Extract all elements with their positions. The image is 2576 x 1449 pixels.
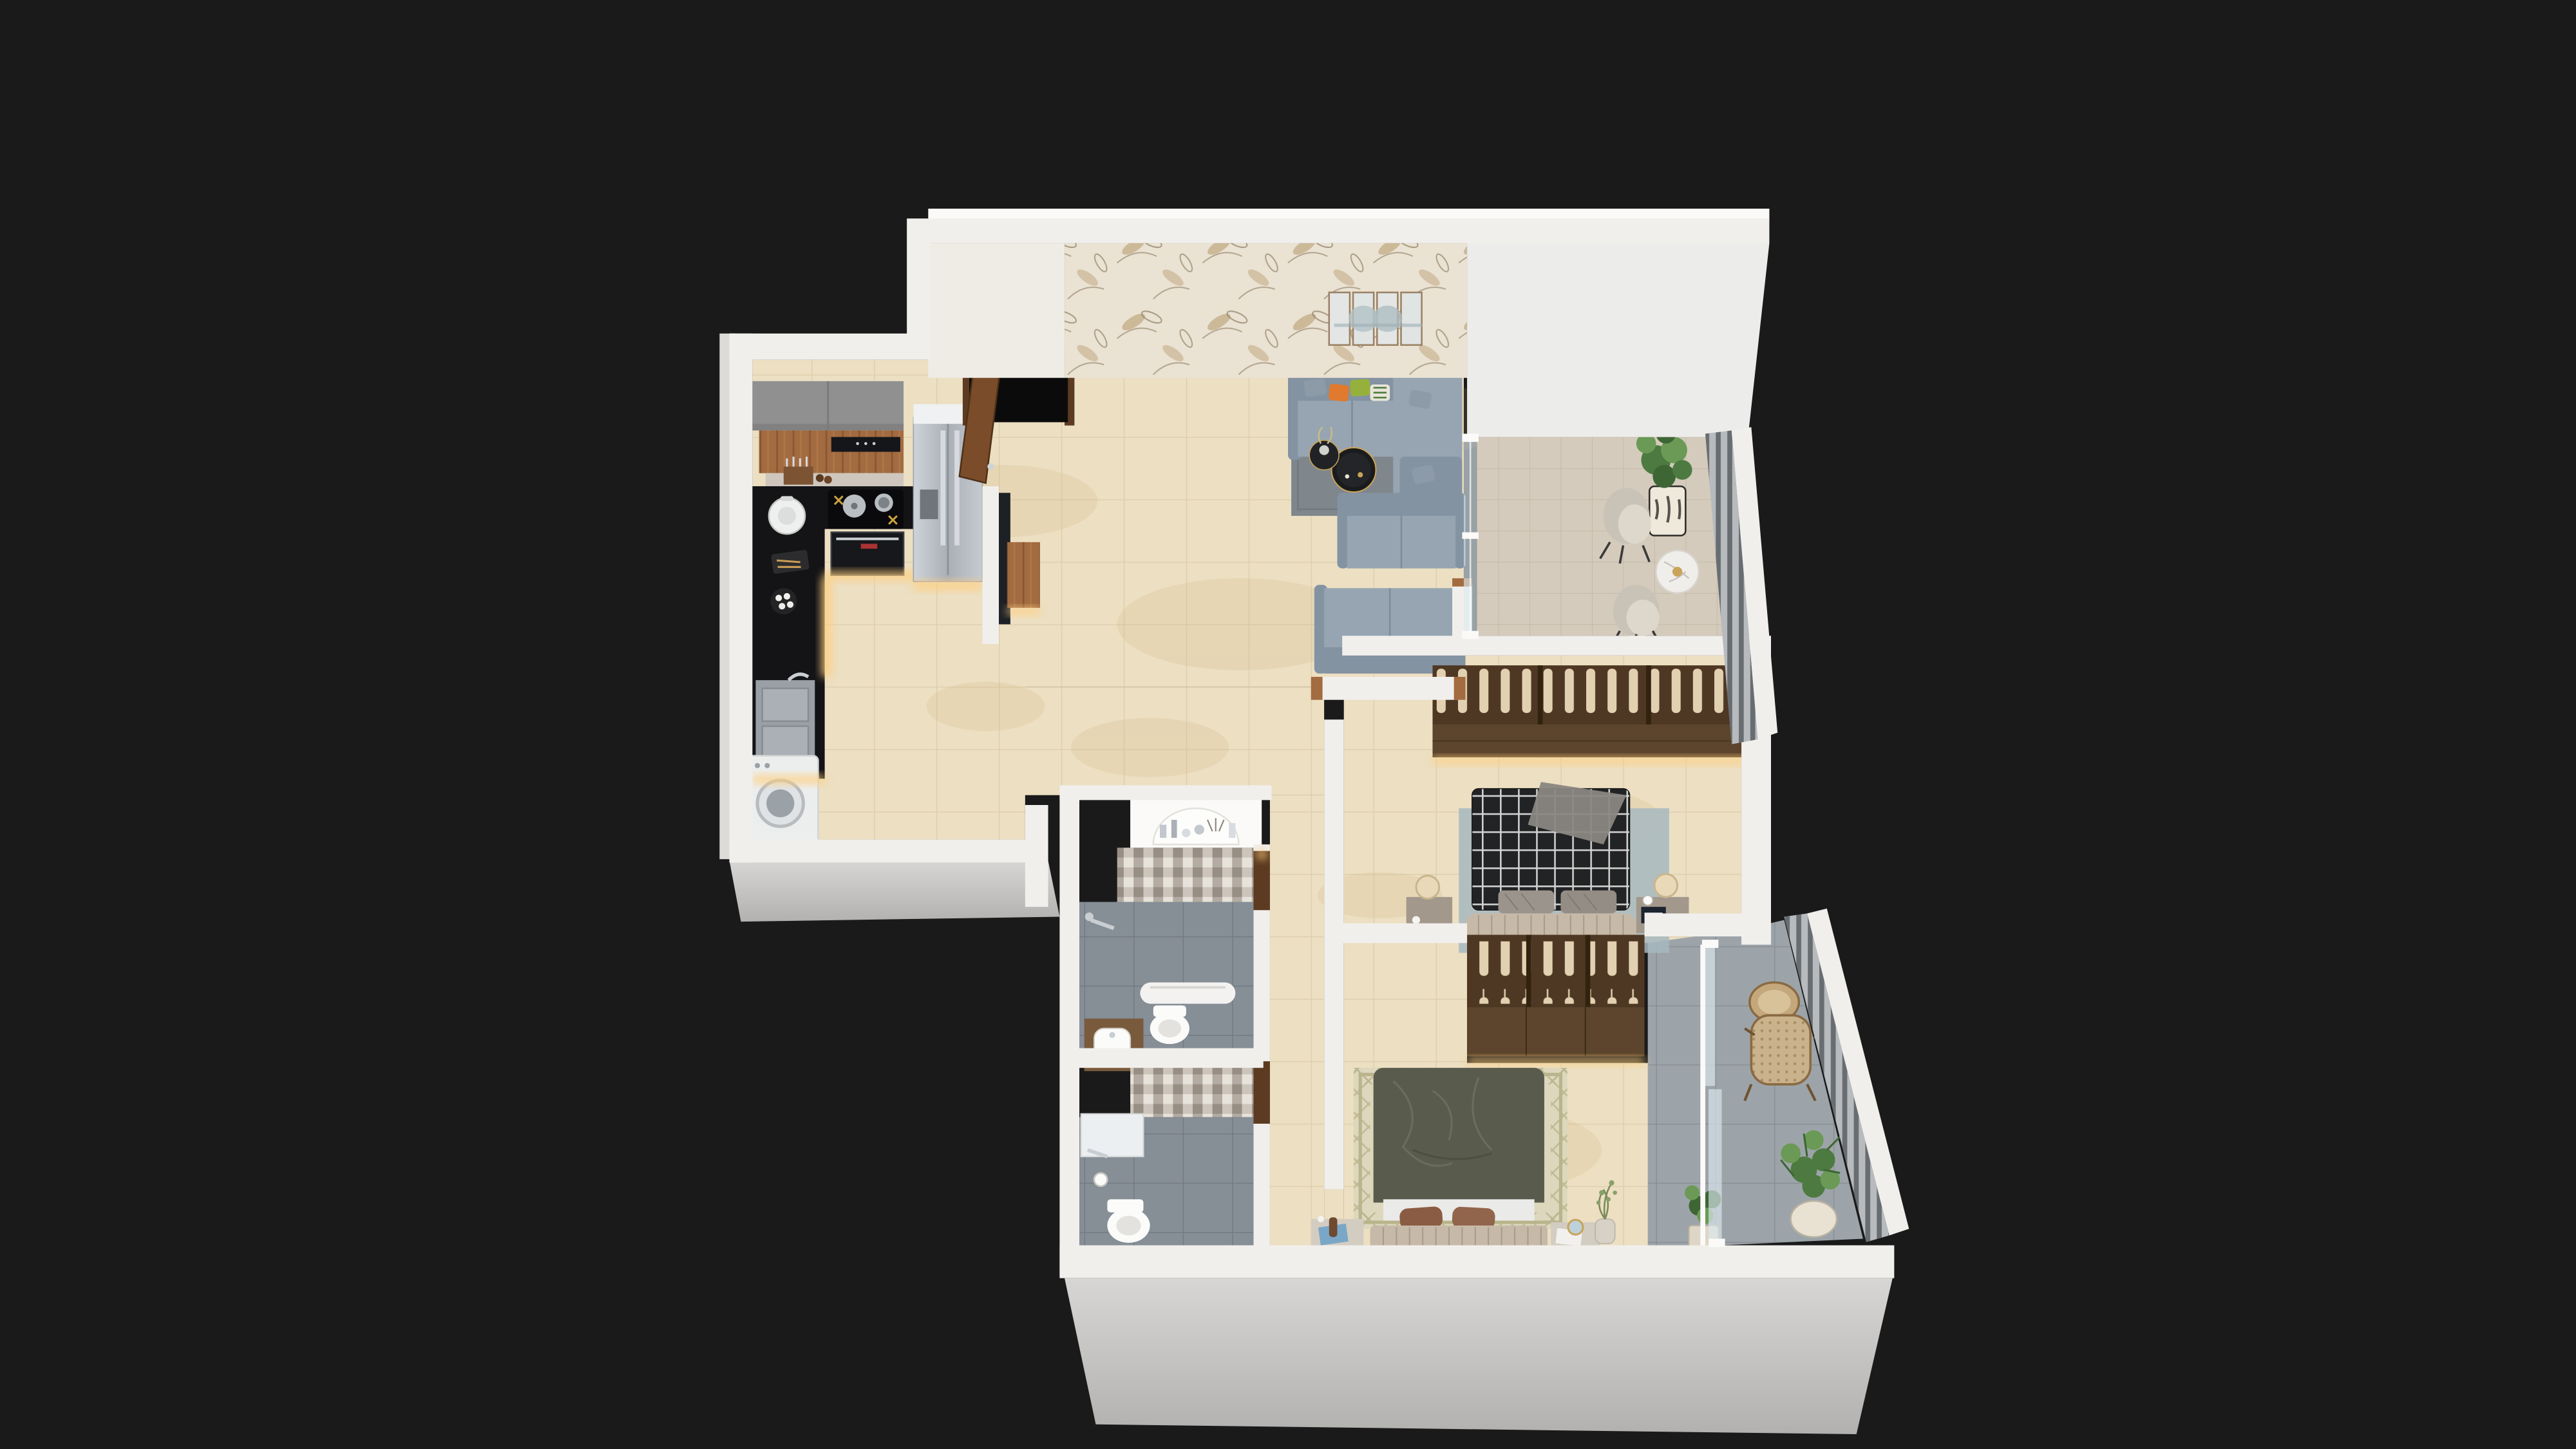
table-lamp <box>1654 874 1678 897</box>
stub-wall <box>1025 805 1048 907</box>
bottom-wall <box>1059 1245 1894 1278</box>
tv-partition-wall <box>983 486 999 644</box>
bath-north-wall <box>1059 785 1271 800</box>
top-wall <box>928 218 1769 243</box>
accent-loveseat <box>1338 493 1466 568</box>
bath-door-jamb <box>1253 1061 1270 1124</box>
table-lamp <box>1416 876 1439 899</box>
tv-console <box>1007 542 1040 608</box>
led-strip <box>825 572 927 580</box>
oven <box>831 533 904 575</box>
living-balcony-glass-railing <box>1462 433 1479 639</box>
wardrobe-1 <box>1432 665 1761 764</box>
balcony-back-wall <box>1467 243 1769 437</box>
kitchen-top-wall <box>730 334 930 360</box>
floor-plan-render <box>0 0 2576 1449</box>
cooktop-hob <box>828 489 904 529</box>
bath-west-wall <box>1059 790 1079 1276</box>
corridor-east-wall <box>1324 719 1344 1189</box>
hallway-console <box>1130 799 1262 848</box>
window-settee <box>1314 585 1466 674</box>
mosaic-wall-band <box>1117 848 1254 902</box>
kitchen-bottom-wall <box>730 840 1048 863</box>
mosaic-wall-band <box>1130 1065 1253 1117</box>
bedroom-divider-wall-right <box>1645 913 1743 936</box>
vase <box>1319 445 1329 455</box>
pillow <box>1499 891 1555 914</box>
floor-plan-canvas <box>0 0 2576 1449</box>
bedroom-divider-wall-left <box>1342 923 1467 943</box>
marble-side-table <box>1656 551 1698 593</box>
led-dot <box>1257 849 1267 859</box>
washing-machine <box>743 755 818 844</box>
led-strip <box>913 582 982 590</box>
wardrobe-2 <box>1467 935 1645 1065</box>
toilet-paper <box>1094 1173 1107 1186</box>
settee-half-wall <box>1311 677 1466 700</box>
living-bedroom1-wall <box>1342 636 1771 656</box>
toilet <box>1150 1005 1189 1044</box>
led-strip <box>1007 608 1040 614</box>
pillow <box>1560 891 1616 914</box>
door-handle <box>987 463 994 469</box>
kitchen-west-wall <box>730 334 753 862</box>
bath-door-jamb <box>1253 851 1270 910</box>
vanity-mirror <box>1568 1220 1583 1235</box>
kitchen-sink <box>755 674 815 762</box>
bed-1 <box>1466 782 1636 943</box>
entry-wall-face <box>928 243 1065 378</box>
tub-ledge <box>1140 983 1235 1004</box>
led-strip <box>752 775 824 784</box>
egg-bowl <box>770 588 797 614</box>
led-strip <box>822 578 831 677</box>
bath-divider-wall <box>1070 1048 1264 1068</box>
